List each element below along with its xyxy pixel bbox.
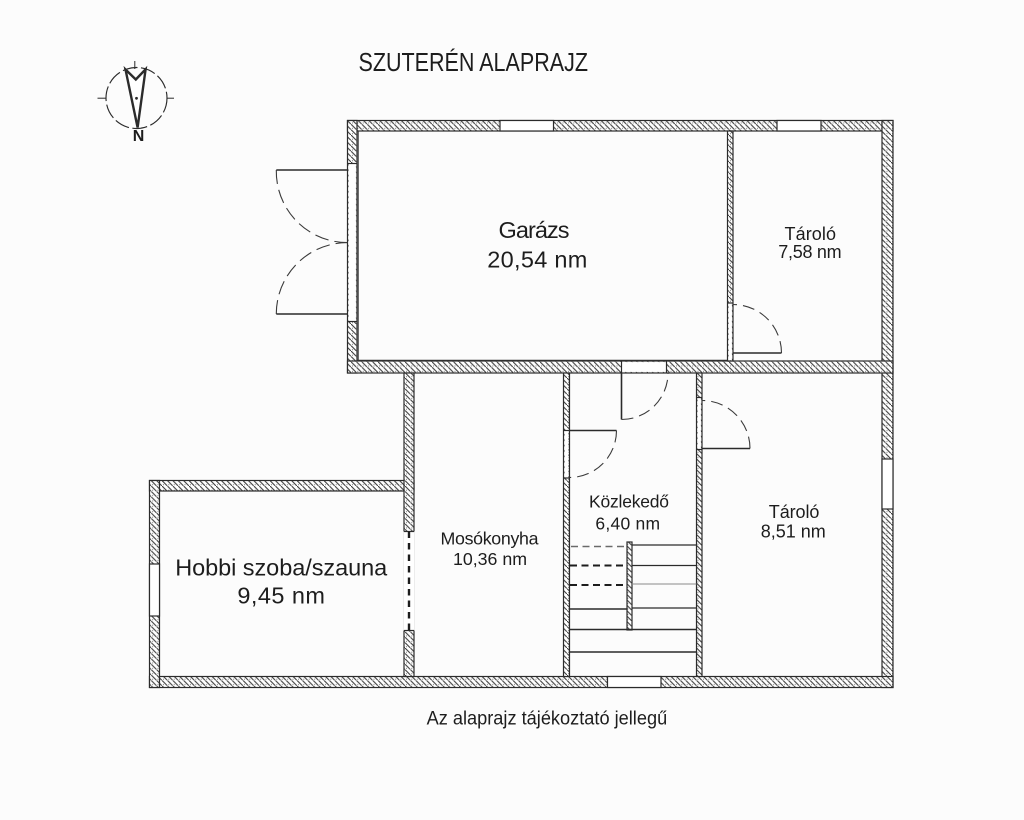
svg-text:Az alaprajz tájékoztató jelleg: Az alaprajz tájékoztató jellegű	[427, 709, 668, 730]
svg-text:Tároló: Tároló	[769, 502, 820, 522]
svg-text:SZUTERÉN ALAPRAJZ: SZUTERÉN ALAPRAJZ	[359, 48, 589, 77]
svg-text:Tároló: Tároló	[785, 224, 837, 244]
svg-text:Mosókonyha: Mosókonyha	[441, 528, 539, 548]
svg-text:Hobbi szoba/szauna: Hobbi szoba/szauna	[175, 555, 388, 581]
svg-text:9,45 nm: 9,45 nm	[237, 583, 325, 609]
svg-text:10,36 nm: 10,36 nm	[453, 549, 527, 569]
svg-text:20,54 nm: 20,54 nm	[487, 246, 587, 272]
svg-text:7,58 nm: 7,58 nm	[778, 242, 841, 262]
svg-text:Garázs: Garázs	[499, 217, 570, 243]
svg-text:8,51 nm: 8,51 nm	[761, 522, 826, 542]
svg-text:N: N	[133, 128, 145, 145]
svg-text:6,40 nm: 6,40 nm	[595, 514, 660, 534]
svg-text:Közlekedő: Közlekedő	[589, 491, 669, 511]
